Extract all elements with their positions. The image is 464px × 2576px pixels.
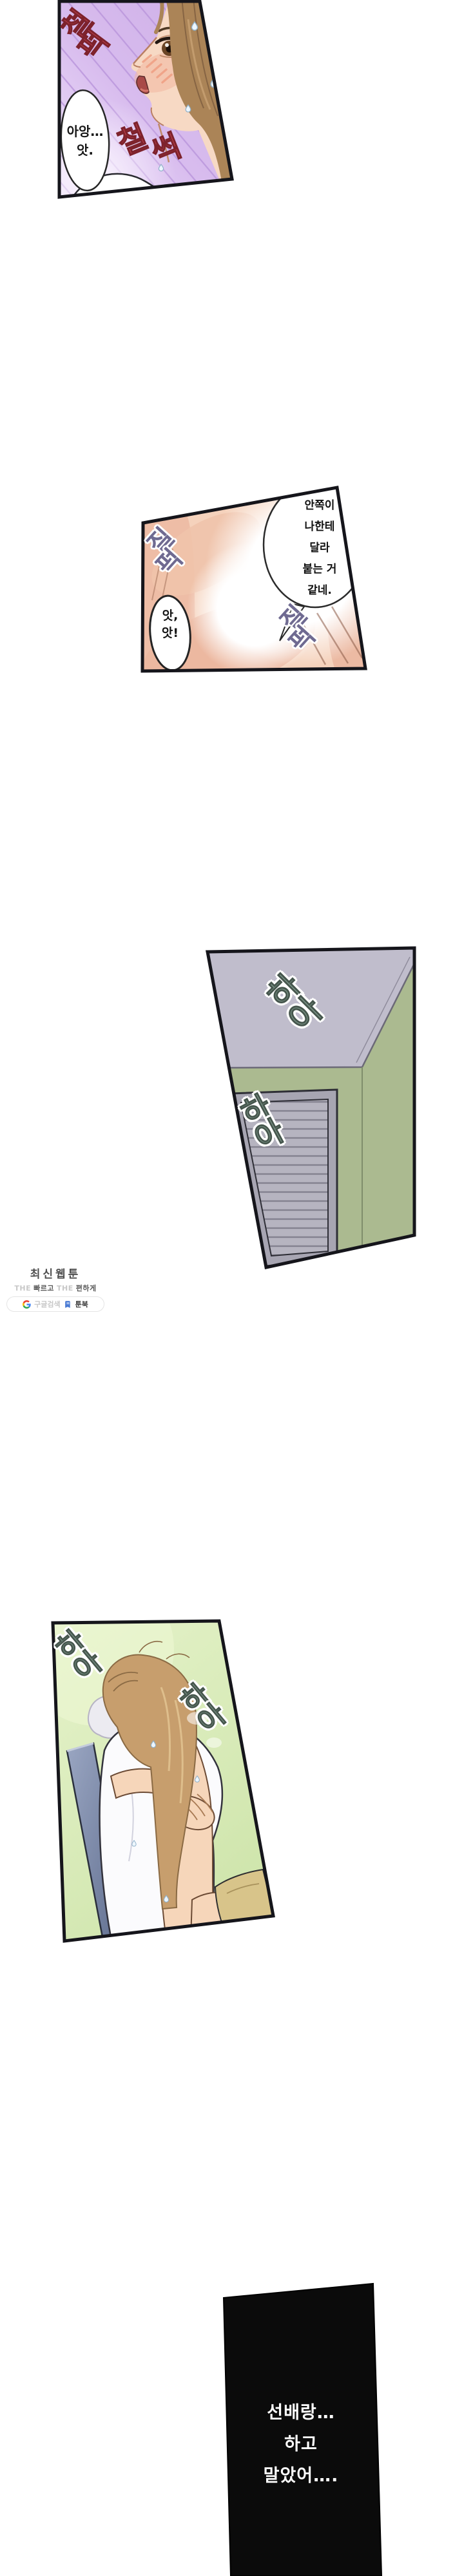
watermark-tagline: THE 빠르고 THE 편하게 <box>6 1283 104 1293</box>
webtoon-page: 철 퍽 퍽 철 썩 아앙… 앗. 안쪽이 나한테 달라 붙는 거 같네. 질 퍽… <box>0 0 464 2576</box>
sfx-sigh-sound: 하 아 <box>264 967 327 1039</box>
book-icon <box>64 1300 72 1309</box>
speech-bubble-text: 앗, 앗! <box>153 607 188 642</box>
sfx-slap-sound: 철 퍽 <box>59 3 112 66</box>
sfx-squelch-sound: 질 퍽 <box>280 603 316 654</box>
watermark-title: 최신웹툰 <box>6 1265 104 1281</box>
monologue-text: 선배랑… 하고 말았어…. <box>227 2397 375 2492</box>
sfx-squelch-sound: 질 퍽 <box>147 526 184 577</box>
watermark-search-pill[interactable]: 구글검색 툰북 <box>6 1296 104 1312</box>
sfx-sigh-sound: 하 아 <box>239 1091 287 1154</box>
sfx-sigh-sound: 하 아 <box>179 1678 230 1739</box>
watermark: 최신웹툰 THE 빠르고 THE 편하게 구글검색 <box>6 1265 104 1312</box>
sfx-slap-sound: 철 썩 <box>117 120 177 156</box>
google-icon <box>23 1300 31 1309</box>
watermark-brand: 툰북 <box>75 1299 88 1309</box>
sfx-sigh-sound: 하 아 <box>53 1624 106 1687</box>
google-search-label: 구글검색 <box>34 1299 60 1309</box>
speech-bubble-text: 아앙… 앗. <box>62 122 108 160</box>
